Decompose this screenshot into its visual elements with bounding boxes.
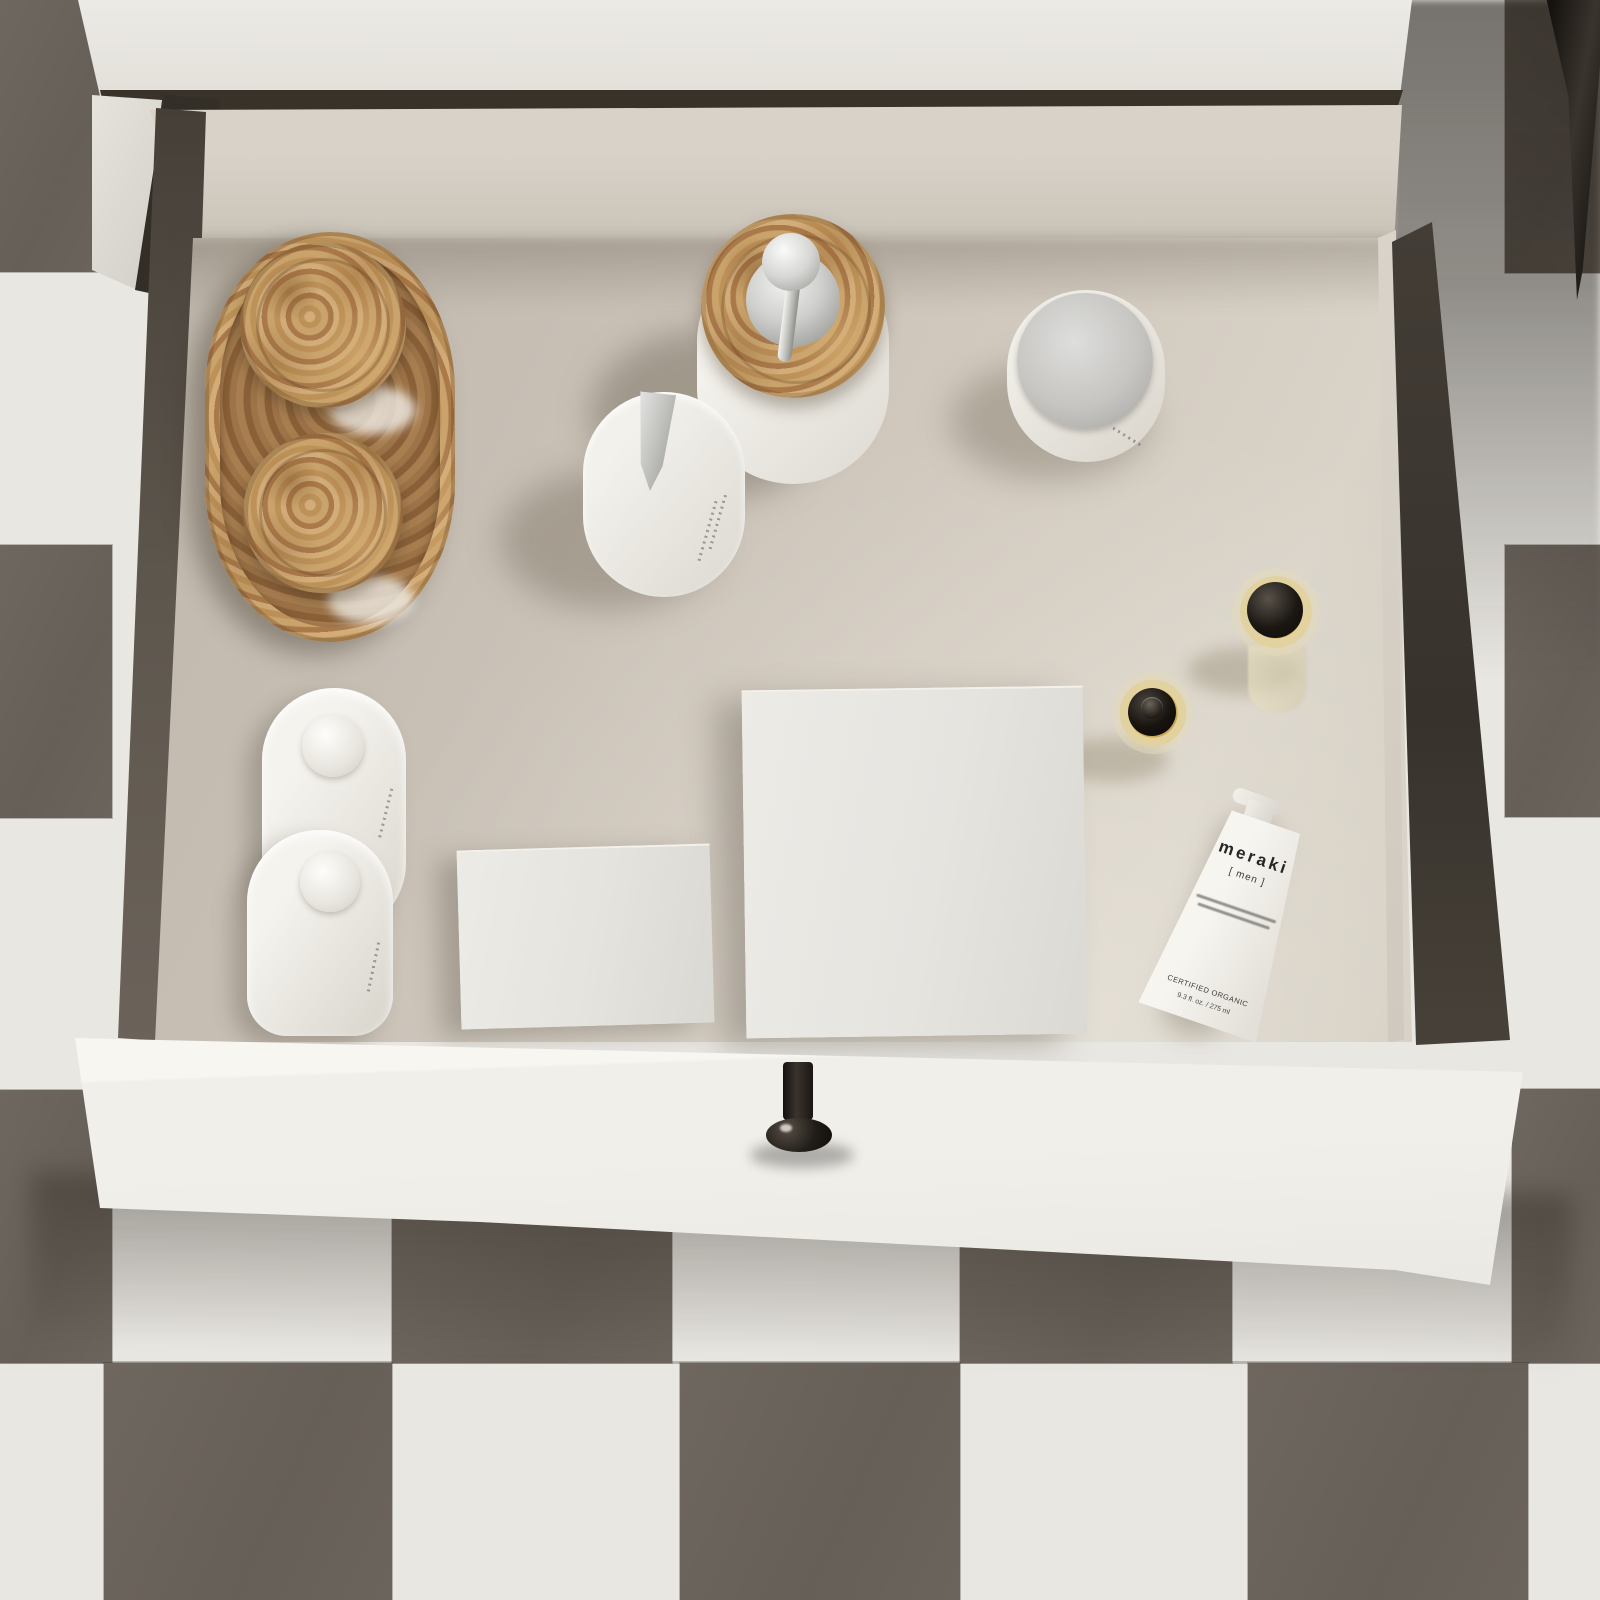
floor-tile-dark — [0, 545, 112, 818]
wood-jar-lid — [243, 433, 403, 593]
drawer-knob-highlight — [780, 1124, 792, 1132]
floor-tile-dark — [104, 1363, 392, 1600]
lotion-bottle-dome-cap — [302, 715, 364, 777]
white-box-large — [742, 686, 1088, 1039]
wood-jar-lid — [240, 242, 406, 408]
cabinet-upper-front — [70, 0, 1420, 96]
soap-pump-head — [762, 233, 820, 291]
cream-jar-chrome-lid — [1017, 293, 1153, 429]
lotion-bottle-dome-cap — [300, 852, 360, 912]
amber-bottle-dropper-nub — [1141, 697, 1163, 719]
amber-bottle-black-cap — [1247, 582, 1303, 638]
floor-tile-dark — [1248, 1363, 1528, 1600]
drawer-knob-stem — [783, 1062, 813, 1120]
floor-tile-dark — [680, 1363, 960, 1600]
bathroom-drawer-scene: meraki [ men ] CERTIFIED ORGANIC 9.3 fl.… — [0, 0, 1600, 1600]
white-box-small — [457, 844, 715, 1030]
drawer-knob — [766, 1118, 832, 1152]
